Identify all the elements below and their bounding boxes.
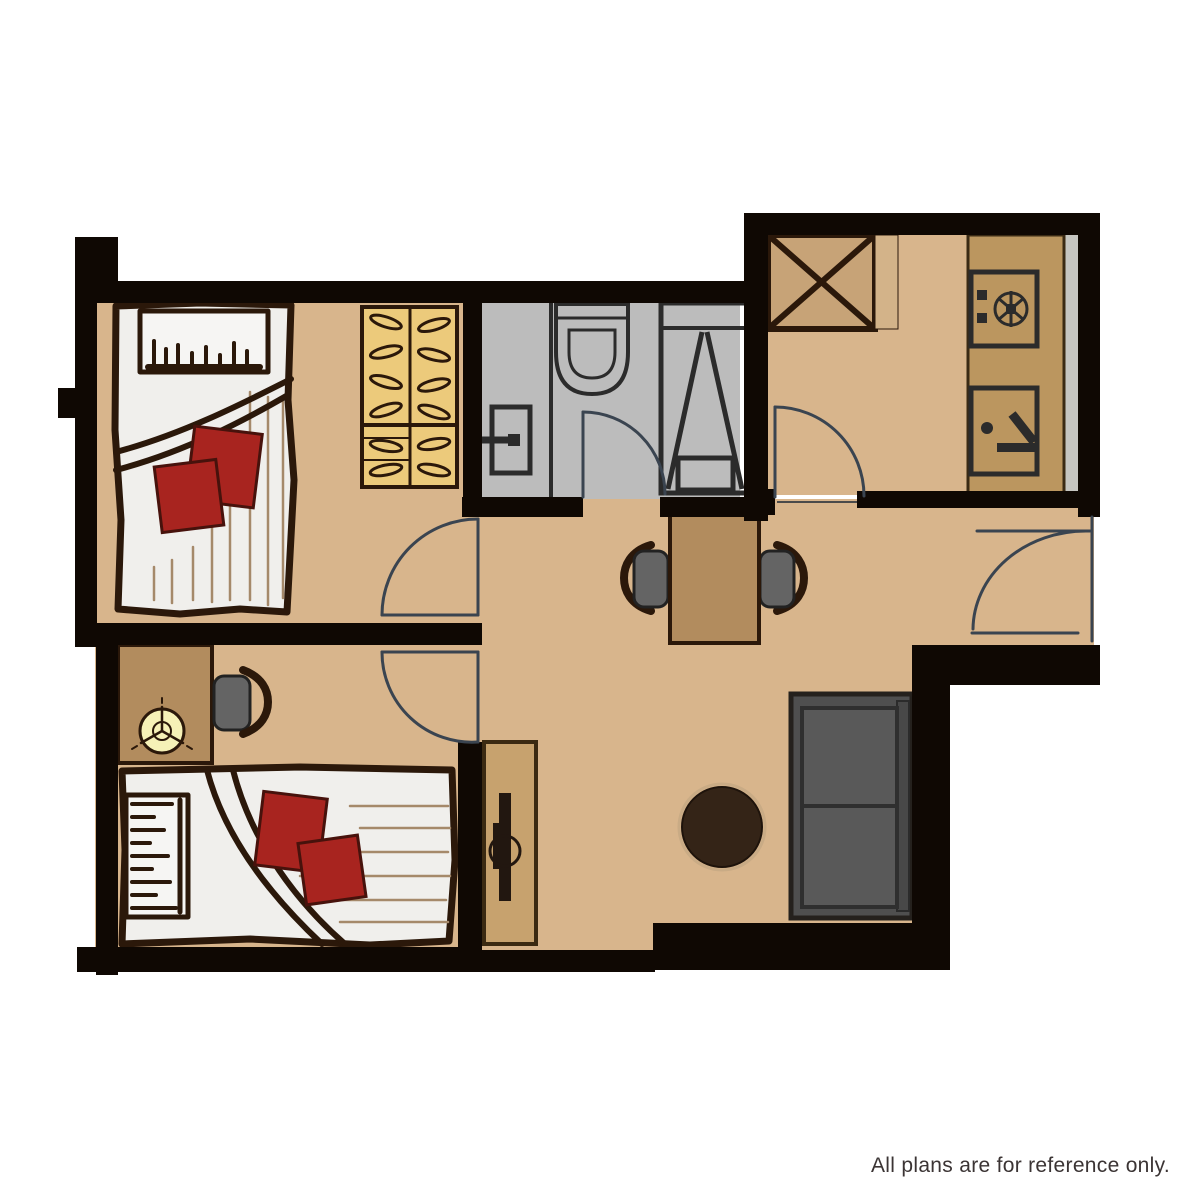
sofa-cushion-bottom (802, 806, 897, 907)
wall-bedroom2-bottom (77, 947, 463, 972)
single-bed-icon (115, 303, 294, 614)
wall-top (75, 281, 766, 303)
bed2-red-cushion-2 (298, 835, 366, 905)
wall-kitchen-right (1078, 213, 1100, 517)
wall-living-bottom (653, 923, 950, 970)
wall-bedroom2-right (458, 742, 482, 952)
wall-bathroom-bottom-right (660, 497, 757, 517)
wall-tv-nook-bottom (463, 950, 655, 972)
tv-cabinet-icon (484, 742, 536, 944)
double-bed-icon (122, 767, 455, 945)
wall-between-bedrooms (96, 623, 482, 645)
kitchen-window-strip (1064, 235, 1078, 493)
wall-kitchen-dining (857, 491, 1080, 508)
kitchen-appliance-box-icon (768, 235, 898, 329)
wall-bathroom-bottom-left (462, 497, 583, 517)
wall-kitchen-door-stub (755, 489, 775, 515)
floor-plan-canvas (0, 0, 1200, 1200)
coffee-table-icon (679, 784, 765, 870)
wall-kitchen-top (744, 213, 1100, 235)
sofa-cushion-top (802, 708, 897, 806)
wall-bedroom1-right (463, 281, 482, 507)
disclaimer-text: All plans are for reference only. (871, 1154, 1170, 1178)
wardrobe-icon (362, 307, 457, 487)
wall-left-lower (96, 625, 118, 975)
wall-left-upper (75, 281, 97, 647)
floor-plan (0, 0, 1200, 1200)
wall-below-entrance (912, 645, 1100, 685)
dining-table (670, 513, 759, 643)
sofa-icon (791, 694, 912, 918)
bed1-red-cushion-2 (154, 459, 224, 532)
wall-bathroom-kitchen (744, 213, 768, 521)
wall-left-notch (58, 388, 77, 418)
